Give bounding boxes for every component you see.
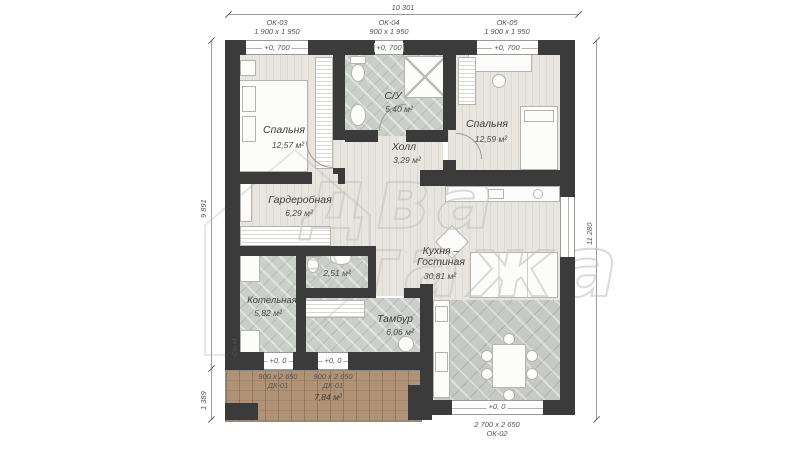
room-su-area: 5,40 м² <box>385 104 413 114</box>
room-hall-area: 3,29 м² <box>393 155 421 165</box>
room-su-name: С/У <box>384 90 401 102</box>
wardrobe-closet <box>458 57 476 105</box>
toilet-icon <box>351 64 365 82</box>
chair <box>526 368 538 380</box>
room-bedroom1-name: Спальня <box>263 124 305 136</box>
ok04-name: ОК-04 <box>378 18 399 27</box>
callout-dk01-left: 900 x 2 650 ДК-01 <box>258 372 297 391</box>
dk01-name: ДК-01 <box>323 381 344 390</box>
doormat <box>398 336 414 352</box>
chair <box>481 350 493 362</box>
ok05-size: 1 900 x 1 950 <box>484 27 529 36</box>
chair <box>526 350 538 362</box>
ok05-name: ОК-05 <box>496 18 517 27</box>
chair <box>503 333 515 345</box>
appliance-icon <box>435 352 448 372</box>
callout-ok05: ОК-05 1 900 x 1 950 <box>484 18 529 37</box>
window-right-wall <box>560 197 575 257</box>
wall-interior <box>420 284 433 400</box>
room-wardrobe-area: 6,29 м² <box>285 208 313 218</box>
pillow <box>524 110 554 122</box>
wall-left <box>225 40 240 370</box>
washing-machine-label: Ст.М. <box>232 337 239 356</box>
floor-plan: два этажа <box>0 0 800 450</box>
desk <box>468 54 532 72</box>
room-boiler-area: 5,82 м² <box>254 308 282 318</box>
wall-interior <box>345 130 378 142</box>
room-hall-name: Холл <box>392 141 416 153</box>
wall-terrace-corner <box>225 403 258 420</box>
level-dk01-left: +0, 0 <box>268 356 289 365</box>
ok02-size: 2 700 x 2 650 <box>474 420 519 429</box>
dk01-size: 900 x 2 650 <box>258 372 297 381</box>
wall-terrace-corner <box>408 385 432 420</box>
dining-table <box>492 344 526 388</box>
wall-interior <box>404 288 420 298</box>
room-boiler-name: Котельная <box>247 295 297 306</box>
dk01-size: 900 x 2 650 <box>313 372 352 381</box>
room-terrace-area: 7,84 м² <box>314 392 342 402</box>
level-ok03: +0, 700 <box>262 43 291 52</box>
ok04-size: 900 x 1 950 <box>369 27 408 36</box>
ok03-size: 1 900 x 1 950 <box>254 27 299 36</box>
wall-interior <box>443 54 456 130</box>
room-bedroom2-name: Спальня <box>466 118 508 130</box>
room-wc-area: 2,51 м² <box>323 268 351 278</box>
level-dk01-right: +0, 0 <box>323 356 344 365</box>
chair <box>492 74 506 88</box>
wall-interior <box>420 170 560 186</box>
wall-interior <box>338 172 345 184</box>
nightstand <box>240 60 256 76</box>
wall-interior <box>333 54 345 140</box>
kitchen-sink-icon <box>533 189 543 199</box>
dim-line-top <box>228 14 578 15</box>
dim-left-main: 9 891 <box>199 199 208 218</box>
wall-interior <box>443 160 456 170</box>
level-ok05: +0, 700 <box>492 43 521 52</box>
callout-ok03: ОК-03 1 900 x 1 950 <box>254 18 299 37</box>
ok02-name: ОК-02 <box>486 429 507 438</box>
dim-tick <box>208 416 215 423</box>
pillow <box>242 86 256 112</box>
sink-icon <box>350 104 366 126</box>
dim-top-total: 10 301 <box>392 3 415 12</box>
callout-dk01-right: 900 x 2 650 ДК-01 <box>313 372 352 391</box>
toilet-tank <box>350 56 366 64</box>
room-wardrobe-name: Гардеробная <box>268 194 332 206</box>
level-ok04: +0, 700 <box>374 43 403 52</box>
room-tambour-area: 6,06 м² <box>386 327 414 337</box>
dim-tick <box>575 11 582 18</box>
room-tambour-name: Тамбур <box>377 313 413 325</box>
room-kitchen-area: 30,81 м² <box>424 271 456 281</box>
dim-tick <box>593 416 600 423</box>
dk01-name: ДК-01 <box>268 381 289 390</box>
room-kitchen-name2: Гостиная <box>417 256 465 268</box>
dim-left-terrace: 1 389 <box>199 391 208 410</box>
dim-right-total: 11 280 <box>585 223 594 245</box>
level-ok02: +0, 0 <box>487 402 508 411</box>
shower-cabin <box>404 56 446 98</box>
callout-ok04: ОК-04 900 x 1 950 <box>369 18 408 37</box>
room-bedroom1-area: 12,57 м² <box>272 140 304 150</box>
wall-interior <box>225 172 312 184</box>
callout-ok02: 2 700 x 2 650 ОК-02 <box>474 420 519 439</box>
room-bedroom2-area: 12,59 м² <box>475 134 507 144</box>
wall-interior <box>296 288 372 298</box>
wall-interior <box>296 246 306 356</box>
ok03-name: ОК-03 <box>266 18 287 27</box>
chair <box>481 368 493 380</box>
